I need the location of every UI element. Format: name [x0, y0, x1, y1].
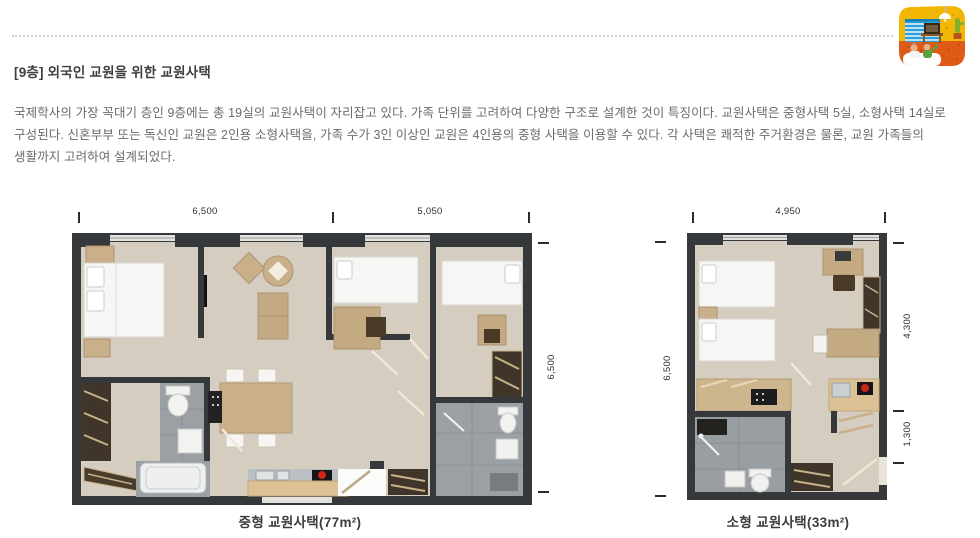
dimension-tick: [692, 212, 694, 223]
dimension-tick: [538, 491, 549, 493]
dimension-label-top: 5,050: [350, 206, 510, 217]
dimension-label-right: 6,500: [546, 337, 558, 397]
floorplan-medium: 6,500 5,050: [65, 205, 560, 535]
body-line: 생활까지 고려하여 설계되었다.: [14, 146, 972, 168]
dimension-tick: [78, 212, 80, 223]
floorplan-caption: 중형 교원사택(77m²): [65, 511, 535, 531]
dimension-tick: [655, 495, 666, 497]
floorplan-small-image: [687, 233, 887, 500]
dimension-label-top: 6,500: [125, 206, 285, 217]
room-illustration-icon: [897, 3, 967, 69]
dimension-label-right: 1,300: [902, 404, 914, 464]
dimension-tick: [884, 212, 886, 223]
dimension-tick: [893, 242, 904, 244]
article-body: 국제학사의 가장 꼭대기 층인 9층에는 총 19실의 교원사택이 자리잡고 있…: [14, 102, 972, 168]
dimension-tick: [528, 212, 530, 223]
page-title: [9층] 외국인 교원을 위한 교원사택: [14, 61, 211, 81]
floorplan-small: 4,950: [650, 205, 930, 535]
dotted-divider: [12, 35, 893, 37]
body-line: 구성된다. 신혼부부 또는 독신인 교원은 2인용 소형사택을, 가족 수가 3…: [14, 124, 972, 146]
room-illustration-graphic: [897, 3, 967, 69]
page: [9층] 외국인 교원을 위한 교원사택 국제학사의 가장 꼭대기 층인 9층에…: [0, 0, 980, 538]
body-line: 국제학사의 가장 꼭대기 층인 9층에는 총 19실의 교원사택이 자리잡고 있…: [14, 102, 972, 124]
floorplan-medium-image: [72, 233, 532, 505]
floorplan-caption: 소형 교원사택(33m²): [650, 511, 926, 531]
dimension-label-right: 4,300: [902, 296, 914, 356]
dimension-tick: [332, 212, 334, 223]
dimension-tick: [655, 241, 666, 243]
dimension-label-top: 4,950: [708, 206, 868, 217]
dimension-label-left: 6,500: [662, 338, 674, 398]
dimension-tick: [538, 242, 549, 244]
